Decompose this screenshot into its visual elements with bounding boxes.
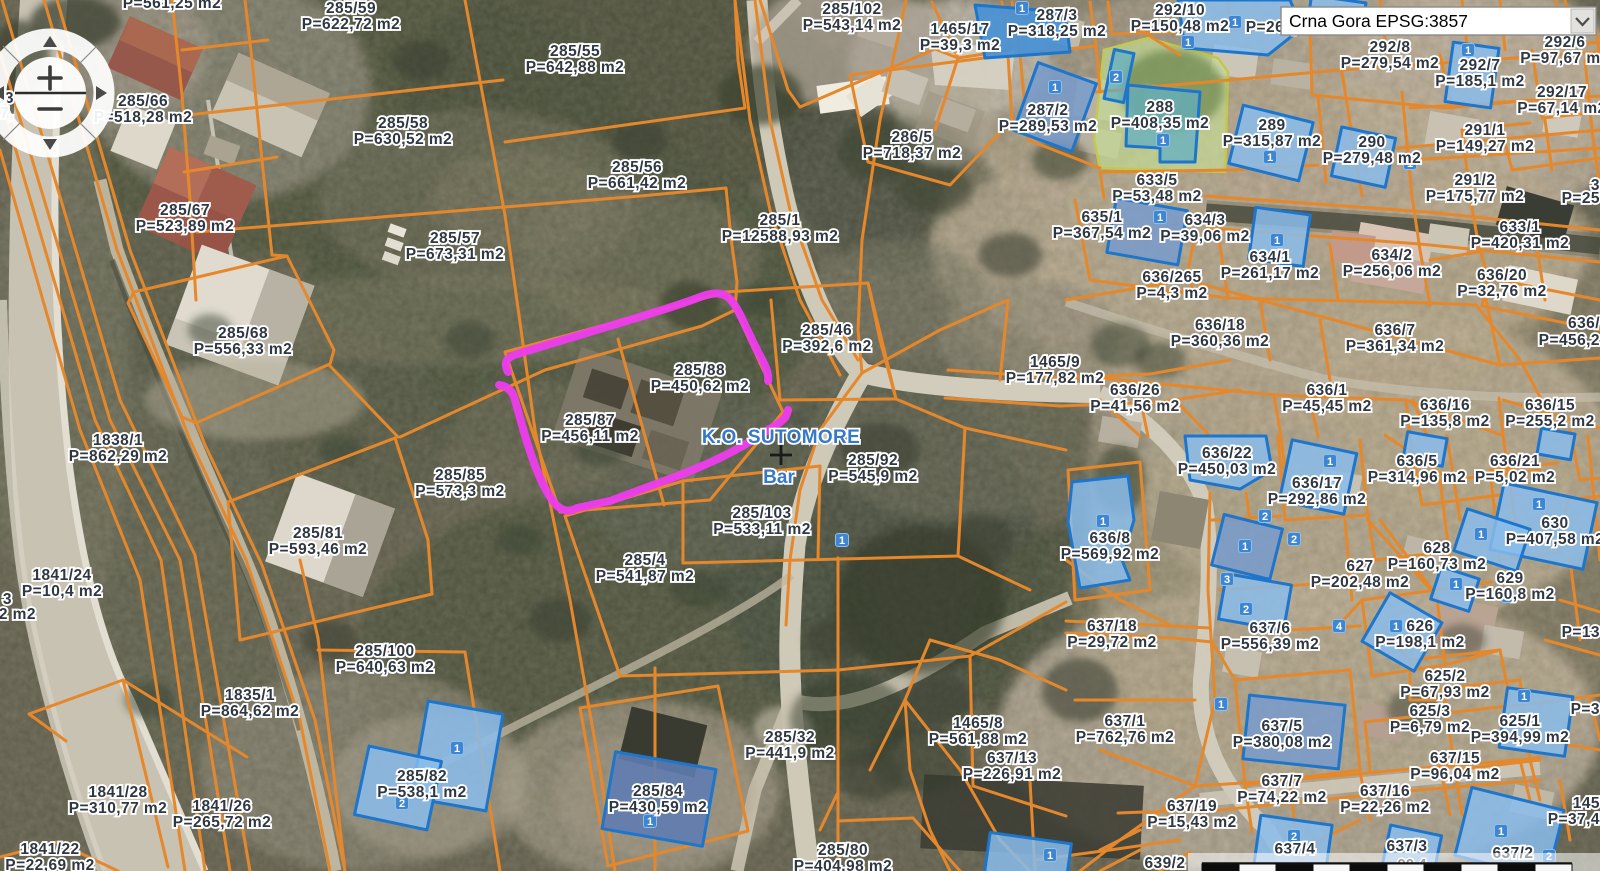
svg-text:P=360,36 m2: P=360,36 m2 (1171, 333, 1269, 350)
svg-text:P=310,77 m2: P=310,77 m2 (69, 800, 167, 817)
svg-text:P=202,48 m2: P=202,48 m2 (1311, 574, 1409, 591)
svg-text:1: 1 (1274, 235, 1280, 247)
svg-text:P=450,62 m2: P=450,62 m2 (651, 378, 749, 395)
svg-text:1: 1 (1478, 529, 1484, 541)
svg-text:285/55: 285/55 (550, 43, 600, 60)
svg-text:1465/8: 1465/8 (953, 715, 1003, 732)
svg-text:P=380,08 m2: P=380,08 m2 (1233, 734, 1331, 751)
svg-text:636/265: 636/265 (1142, 269, 1201, 286)
svg-text:1: 1 (1465, 45, 1471, 57)
svg-text:2: 2 (1262, 511, 1268, 523)
svg-text:1841/22: 1841/22 (20, 841, 79, 858)
svg-text:1835/1: 1835/1 (225, 687, 275, 704)
svg-text:P=67,93 m2: P=67,93 m2 (1400, 684, 1489, 701)
svg-text:292/8: 292/8 (1369, 39, 1410, 56)
svg-text:636/21: 636/21 (1490, 453, 1540, 470)
svg-text:625/1: 625/1 (1499, 713, 1540, 730)
svg-text:P=22,69 m2: P=22,69 m2 (5, 857, 94, 871)
svg-text:285/103: 285/103 (732, 505, 791, 522)
svg-text:1465/17: 1465/17 (930, 21, 989, 38)
svg-text:286/5: 286/5 (891, 129, 932, 146)
svg-text:P=361,34 m2: P=361,34 m2 (1346, 338, 1444, 355)
svg-text:P=622,72 m2: P=622,72 m2 (302, 16, 400, 33)
svg-text:2: 2 (1291, 534, 1297, 546)
svg-text:P=74,22 m2: P=74,22 m2 (1237, 789, 1326, 806)
svg-text:P=561,88 m2: P=561,88 m2 (929, 731, 1027, 748)
svg-text:1: 1 (1453, 579, 1459, 591)
svg-text:636/16: 636/16 (1420, 397, 1470, 414)
svg-text:285/82: 285/82 (397, 768, 447, 785)
svg-text:P=407,58 m2: P=407,58 m2 (1506, 531, 1600, 548)
svg-text:287/2: 287/2 (1027, 102, 1068, 119)
svg-text:1: 1 (839, 535, 845, 547)
svg-text:P=762,76 m2: P=762,76 m2 (1076, 729, 1174, 746)
svg-text:1465/9: 1465/9 (1030, 354, 1080, 371)
svg-text:636/26: 636/26 (1110, 382, 1160, 399)
svg-text:1838/1: 1838/1 (93, 432, 143, 449)
svg-text:4: 4 (1336, 621, 1343, 633)
svg-text:P=545,9 m2: P=545,9 m2 (828, 468, 917, 485)
svg-text:637/6: 637/6 (1249, 620, 1290, 637)
svg-text:637/13: 637/13 (987, 750, 1037, 767)
svg-text:292/7: 292/7 (1459, 57, 1500, 74)
svg-text:K.O. SUTOMORE: K.O. SUTOMORE (702, 427, 860, 448)
svg-text:P=96,04 m2: P=96,04 m2 (1410, 766, 1499, 783)
svg-text:P=255,2 m2: P=255,2 m2 (1505, 413, 1594, 430)
svg-text:285/67: 285/67 (160, 202, 210, 219)
svg-text:633/1: 633/1 (1499, 219, 1540, 236)
svg-text:637/1: 637/1 (1104, 713, 1145, 730)
svg-text:P=718,37 m2: P=718,37 m2 (863, 145, 961, 162)
svg-text:637/16: 637/16 (1360, 783, 1410, 800)
svg-text:P=456,11 m2: P=456,11 m2 (541, 428, 639, 445)
svg-text:2 m2: 2 m2 (0, 606, 36, 623)
svg-text:1: 1 (1052, 82, 1058, 94)
svg-text:1: 1 (1327, 456, 1333, 468)
svg-text:P=185,1 m2: P=185,1 m2 (1435, 73, 1524, 90)
svg-text:P=53,48 m2: P=53,48 m2 (1112, 188, 1201, 205)
svg-text:P=39,06 m2: P=39,06 m2 (1160, 228, 1249, 245)
svg-text:P=661,42 m2: P=661,42 m2 (588, 175, 686, 192)
svg-text:1: 1 (1185, 37, 1191, 49)
svg-text:3: 3 (1224, 574, 1230, 586)
svg-text:P=640,63 m2: P=640,63 m2 (336, 659, 434, 676)
svg-text:636/18: 636/18 (1195, 317, 1245, 334)
svg-text:P=630,52 m2: P=630,52 m2 (354, 131, 452, 148)
svg-text:636/20: 636/20 (1477, 267, 1527, 284)
svg-text:P=160,8 m2: P=160,8 m2 (1465, 586, 1554, 603)
svg-text:P=160,73 m2: P=160,73 m2 (1388, 556, 1486, 573)
svg-text:285/84: 285/84 (633, 783, 683, 800)
svg-text:289: 289 (1258, 117, 1285, 134)
svg-text:625/3: 625/3 (1409, 703, 1450, 720)
svg-text:P=15,43 m2: P=15,43 m2 (1147, 814, 1236, 831)
svg-text:625/2: 625/2 (1424, 668, 1465, 685)
svg-text:285/46: 285/46 (802, 322, 852, 339)
svg-text:P=523,89 m2: P=523,89 m2 (136, 218, 234, 235)
svg-text:P=135,8 m2: P=135,8 m2 (1400, 413, 1489, 430)
svg-text:P=538,1 m2: P=538,1 m2 (377, 784, 466, 801)
svg-text:1: 1 (1160, 135, 1166, 147)
svg-text:285/87: 285/87 (565, 412, 615, 429)
svg-text:P=408,35 m2: P=408,35 m2 (1111, 115, 1209, 132)
svg-text:291/1: 291/1 (1464, 122, 1505, 139)
svg-text:285/80: 285/80 (818, 842, 868, 859)
svg-text:285/68: 285/68 (218, 325, 268, 342)
svg-text:637/19: 637/19 (1167, 798, 1217, 815)
svg-text:285/92: 285/92 (848, 452, 898, 469)
svg-text:P=6,79 m2: P=6,79 m2 (1390, 719, 1470, 736)
svg-text:P=279,54 m2: P=279,54 m2 (1341, 55, 1439, 72)
svg-text:P=450,03 m2: P=450,03 m2 (1178, 461, 1276, 478)
svg-text:P=642,88 m2: P=642,88 m2 (526, 59, 624, 76)
svg-text:1: 1 (1232, 17, 1238, 29)
svg-text:1841/28: 1841/28 (88, 784, 147, 801)
svg-text:P=367,54 m2: P=367,54 m2 (1053, 225, 1151, 242)
svg-text:P=3: P=3 (1571, 701, 1600, 718)
svg-text:P=10,4 m2: P=10,4 m2 (22, 583, 102, 600)
svg-text:639/2: 639/2 (1144, 855, 1185, 871)
svg-text:1: 1 (1521, 691, 1527, 703)
svg-text:P=25: P=25 (1562, 190, 1600, 207)
svg-text:P=430,59 m2: P=430,59 m2 (609, 799, 707, 816)
svg-text:1: 1 (1157, 212, 1163, 224)
svg-text:285/4: 285/4 (624, 552, 665, 569)
svg-text:636/15: 636/15 (1525, 397, 1575, 414)
svg-text:629: 629 (1496, 570, 1523, 587)
svg-text:1: 1 (1100, 516, 1106, 528)
svg-text:P=67,14 m2: P=67,14 m2 (1517, 100, 1600, 117)
svg-text:1: 1 (1536, 499, 1542, 511)
svg-text:P=864,62 m2: P=864,62 m2 (201, 703, 299, 720)
svg-text:636/: 636/ (1568, 315, 1600, 332)
svg-text:290: 290 (1358, 134, 1385, 151)
svg-text:288: 288 (1146, 99, 1173, 116)
svg-text:291/2: 291/2 (1454, 172, 1495, 189)
svg-text:P=39,3 m2: P=39,3 m2 (920, 37, 1000, 54)
svg-text:P=41,56 m2: P=41,56 m2 (1090, 398, 1179, 415)
svg-text:P=289,53 m2: P=289,53 m2 (999, 118, 1097, 135)
svg-text:P=198,1 m2: P=198,1 m2 (1375, 634, 1464, 651)
svg-text:285/85: 285/85 (435, 467, 485, 484)
svg-text:1: 1 (1267, 152, 1273, 164)
svg-text:P=279,48 m2: P=279,48 m2 (1323, 150, 1421, 167)
svg-text:P=292,86 m2: P=292,86 m2 (1268, 491, 1366, 508)
svg-text:634/3: 634/3 (1184, 212, 1225, 229)
svg-text:628: 628 (1423, 540, 1450, 557)
svg-text:285/88: 285/88 (675, 362, 725, 379)
svg-text:P=420,31 m2: P=420,31 m2 (1471, 235, 1569, 252)
svg-text:635/1: 635/1 (1081, 209, 1122, 226)
svg-text:1: 1 (1498, 826, 1504, 838)
svg-text:P=673,31 m2: P=673,31 m2 (406, 246, 504, 263)
svg-text:P=175,77 m2: P=175,77 m2 (1426, 188, 1524, 205)
svg-text:P=226,91 m2: P=226,91 m2 (963, 766, 1061, 783)
svg-text:1: 1 (1393, 621, 1399, 633)
svg-text:637/3: 637/3 (1386, 838, 1427, 855)
svg-text:P=4,3 m2: P=4,3 m2 (1136, 285, 1207, 302)
svg-text:637/7: 637/7 (1261, 773, 1302, 790)
svg-text:636/8: 636/8 (1089, 530, 1130, 547)
svg-text:636/7: 636/7 (1374, 322, 1415, 339)
svg-text:P=177,82 m2: P=177,82 m2 (1006, 370, 1104, 387)
svg-text:P=318,25 m2: P=318,25 m2 (1008, 23, 1106, 40)
svg-text:630: 630 (1541, 515, 1568, 532)
svg-text:P=314,96 m2: P=314,96 m2 (1368, 469, 1466, 486)
svg-text:P=13: P=13 (1562, 624, 1600, 641)
svg-text:P=45,45 m2: P=45,45 m2 (1282, 398, 1371, 415)
svg-text:287/3: 287/3 (1036, 7, 1077, 24)
svg-text:636/5: 636/5 (1396, 453, 1437, 470)
svg-text:P=32,76 m2: P=32,76 m2 (1457, 283, 1546, 300)
svg-text:285/66: 285/66 (118, 93, 168, 110)
svg-text:637/15: 637/15 (1430, 750, 1480, 767)
svg-text:285/32: 285/32 (765, 729, 815, 746)
svg-text:634/2: 634/2 (1371, 247, 1412, 264)
svg-text:145: 145 (1573, 795, 1600, 812)
svg-text:P=97,67 m2: P=97,67 m2 (1520, 50, 1600, 67)
svg-text:637/5: 637/5 (1261, 718, 1302, 735)
svg-text:P=12588,93 m2: P=12588,93 m2 (722, 228, 839, 245)
svg-text:285/59: 285/59 (326, 0, 376, 17)
svg-text:1841/26: 1841/26 (192, 798, 251, 815)
svg-text:2: 2 (1113, 72, 1119, 84)
svg-text:P=456,2: P=456,2 (1539, 332, 1600, 349)
svg-text:P=593,46 m2: P=593,46 m2 (269, 541, 367, 558)
svg-text:P=556,39 m2: P=556,39 m2 (1221, 636, 1319, 653)
svg-text:P=22,26 m2: P=22,26 m2 (1340, 799, 1429, 816)
svg-text:Bar: Bar (763, 467, 795, 488)
svg-text:P=573,3 m2: P=573,3 m2 (415, 483, 504, 500)
svg-text:285/58: 285/58 (378, 115, 428, 132)
svg-text:P=392,6 m2: P=392,6 m2 (782, 338, 871, 355)
svg-text:285/56: 285/56 (612, 159, 662, 176)
svg-text:P=533,11 m2: P=533,11 m2 (713, 521, 811, 538)
svg-text:637/18: 637/18 (1087, 618, 1137, 635)
svg-text:P=5,02 m2: P=5,02 m2 (1475, 469, 1555, 486)
svg-text:285/102: 285/102 (822, 1, 881, 18)
svg-text:P=29,72 m2: P=29,72 m2 (1067, 634, 1156, 651)
svg-text:285/100: 285/100 (355, 643, 414, 660)
svg-text:292/6: 292/6 (1544, 34, 1585, 51)
svg-text:1: 1 (647, 816, 653, 828)
svg-text:285/57: 285/57 (430, 230, 480, 247)
svg-text:P=261,17 m2: P=261,17 m2 (1221, 265, 1319, 282)
svg-text:626: 626 (1406, 618, 1433, 635)
svg-text:P=150,48 m2: P=150,48 m2 (1131, 18, 1229, 35)
svg-text:P=394,99 m2: P=394,99 m2 (1471, 729, 1569, 746)
svg-text:P=569,92 m2: P=569,92 m2 (1061, 546, 1159, 563)
svg-text:292/17: 292/17 (1537, 84, 1587, 101)
svg-text:633/5: 633/5 (1136, 172, 1177, 189)
svg-text:1: 1 (1047, 850, 1053, 862)
svg-text:P=149,27 m2: P=149,27 m2 (1436, 138, 1534, 155)
svg-text:P=541,87 m2: P=541,87 m2 (596, 568, 694, 585)
svg-text:Crna Gora EPSG:3857: Crna Gora EPSG:3857 (1289, 11, 1468, 31)
svg-text:636/22: 636/22 (1202, 445, 1252, 462)
svg-text:634/1: 634/1 (1249, 249, 1290, 266)
svg-text:636/17: 636/17 (1292, 475, 1342, 492)
svg-text:P=256,06 m2: P=256,06 m2 (1343, 263, 1441, 280)
svg-text:1841/24: 1841/24 (32, 567, 91, 584)
svg-text:2: 2 (1243, 604, 1249, 616)
svg-text:1: 1 (1242, 541, 1248, 553)
svg-text:P=441,9 m2: P=441,9 m2 (745, 745, 834, 762)
svg-text:292/10: 292/10 (1155, 2, 1205, 19)
svg-text:285/81: 285/81 (293, 525, 343, 542)
svg-text:636/1: 636/1 (1306, 382, 1347, 399)
svg-text:1: 1 (1019, 3, 1025, 15)
svg-text:1: 1 (454, 743, 460, 755)
svg-text:P=862,29 m2: P=862,29 m2 (69, 448, 167, 465)
svg-text:P=543,14 m2: P=543,14 m2 (803, 17, 901, 34)
svg-text:P=315,87 m2: P=315,87 m2 (1223, 133, 1321, 150)
svg-text:627: 627 (1346, 558, 1373, 575)
svg-text:P=561,25 m2: P=561,25 m2 (123, 0, 221, 12)
svg-text:P=37,4: P=37,4 (1548, 811, 1600, 828)
svg-text:285/1: 285/1 (759, 212, 800, 229)
svg-text:P=404,98 m2: P=404,98 m2 (794, 858, 892, 871)
svg-text:P=556,33 m2: P=556,33 m2 (194, 341, 292, 358)
svg-text:P=265,72 m2: P=265,72 m2 (173, 814, 271, 831)
svg-text:1: 1 (1218, 699, 1224, 711)
